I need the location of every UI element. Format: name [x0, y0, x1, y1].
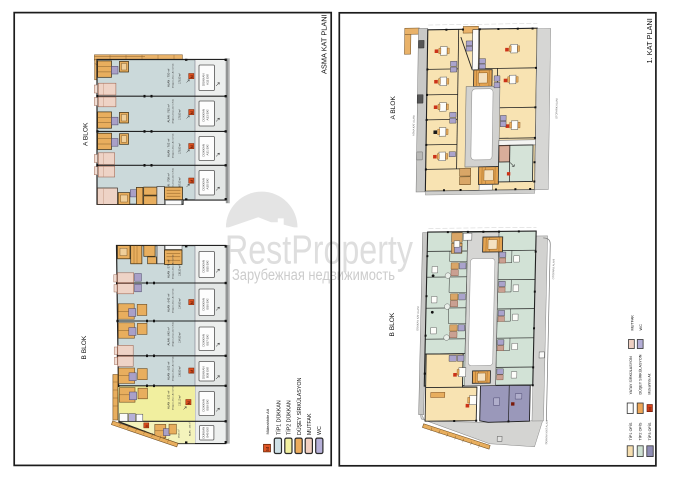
svg-text:OTOPARK ALANI: OTOPARK ALANI: [551, 259, 555, 280]
svg-text:A31 EKİ: A31 EKİ: [205, 144, 210, 155]
svg-text:M: M: [187, 401, 191, 404]
svg-text:ALAN : 632 m²: ALAN : 632 m²: [167, 391, 171, 409]
svg-text:173,80 m²: 173,80 m²: [179, 143, 182, 154]
svg-text:173,80 m²: 173,80 m²: [179, 109, 182, 120]
svg-text:A33 EKİ: A33 EKİ: [205, 109, 210, 120]
svg-text:Müteahhite Ait: Müteahhite Ait: [265, 408, 270, 434]
svg-text:TİP2 DÜKKAN: TİP2 DÜKKAN: [286, 400, 293, 435]
svg-text:M: M: [190, 75, 194, 78]
svg-text:A32 EKİ: A32 EKİ: [205, 74, 210, 85]
svg-text:M: M: [265, 447, 270, 451]
svg-text:TİP2 OFİS: TİP2 OFİS: [638, 422, 643, 440]
svg-text:ALAN : 762 m²: ALAN : 762 m²: [167, 104, 171, 122]
svg-text:B38 EKİ: B38 EKİ: [205, 367, 210, 378]
svg-text:28,15 m²: 28,15 m²: [178, 429, 181, 438]
svg-text:M: M: [190, 145, 194, 148]
svg-text:B BLOK: B BLOK: [389, 312, 396, 336]
svg-text:1. KAT PLANI: 1. KAT PLANI: [645, 18, 654, 63]
svg-text:B39 EKİ: B39 EKİ: [205, 399, 210, 410]
svg-text:(Mağaza+Depo+Asma Kat): (Mağaza+Depo+Asma Kat): [171, 133, 174, 158]
svg-text:OTOPARK ALANI: OTOPARK ALANI: [554, 98, 558, 119]
svg-text:WC: WC: [639, 324, 643, 331]
svg-text:ALAN : 762 m²: ALAN : 762 m²: [167, 139, 171, 157]
svg-text:B BLOK: B BLOK: [81, 335, 88, 359]
svg-text:DÜŞEY SİRKÜLASYON: DÜŞEY SİRKÜLASYON: [296, 378, 303, 435]
svg-text:138,30 m²: 138,30 m²: [179, 265, 182, 276]
svg-text:B36 EKİ: B36 EKİ: [205, 298, 210, 309]
svg-text:TİP1 DÜKKAN: TİP1 DÜKKAN: [275, 400, 282, 435]
svg-text:MUTFAK: MUTFAK: [630, 315, 634, 331]
svg-text:YATAY SİRKÜLASYON: YATAY SİRKÜLASYON: [628, 356, 633, 395]
svg-text:A BLOK: A BLOK: [390, 95, 397, 119]
svg-text:134,80 m²: 134,80 m²: [179, 332, 182, 343]
svg-text:M: M: [190, 301, 194, 304]
svg-text:TİP1 OFİS: TİP1 OFİS: [628, 422, 633, 440]
svg-text:RestProperty: RestProperty: [225, 227, 413, 273]
svg-text:DÜŞEY SİRKÜLASYON: DÜŞEY SİRKÜLASYON: [638, 354, 643, 394]
svg-text:M: M: [190, 111, 194, 114]
svg-text:M: M: [145, 424, 149, 427]
svg-text:A BLOK: A BLOK: [83, 122, 90, 146]
svg-text:B40 EKİ: B40 EKİ: [204, 427, 209, 437]
svg-text:(Mağaza+Depo+Asma Kat): (Mağaza+Depo+Asma Kat): [171, 356, 174, 381]
svg-text:ALAN : 136 m²: ALAN : 136 m²: [189, 421, 192, 436]
svg-text:DÜKKAN KAT ALANI: DÜKKAN KAT ALANI: [415, 306, 420, 331]
svg-text:(Mağaza+Depo+Asma Kat): (Mağaza+Depo+Asma Kat): [171, 322, 174, 347]
svg-text:ALAN : 662 m²: ALAN : 662 m²: [167, 362, 171, 380]
svg-text:MUTFAK: MUTFAK: [307, 413, 313, 435]
svg-text:A30 EKİ: A30 EKİ: [205, 178, 210, 189]
svg-text:TİP3 OFİS: TİP3 OFİS: [647, 422, 652, 440]
svg-text:M: M: [648, 407, 653, 411]
svg-text:(Mağaza+Depo+Asma Kat): (Mağaza+Depo+Asma Kat): [171, 254, 174, 279]
svg-text:ALAN : 642 m²: ALAN : 642 m²: [167, 327, 171, 345]
svg-text:B37 EKİ: B37 EKİ: [205, 334, 210, 345]
svg-text:DÜKKAN KAT ALANI: DÜKKAN KAT ALANI: [544, 420, 549, 445]
svg-text:134,80 m²: 134,80 m²: [179, 298, 182, 309]
svg-text:ALAN : 578 m²: ALAN : 578 m²: [167, 260, 171, 278]
svg-text:(Mağaza+Depo+Asma Kat): (Mağaza+Depo+Asma Kat): [171, 63, 174, 88]
svg-text:167,50 m²: 167,50 m²: [179, 177, 182, 188]
svg-text:ALAN : 642 m²: ALAN : 642 m²: [167, 294, 171, 312]
svg-text:M: M: [190, 180, 194, 183]
svg-text:(Mağaza+Depo+Asma Kat): (Mağaza+Depo+Asma Kat): [171, 385, 174, 410]
svg-text:(Mağaza+Depo+Asma Kat): (Mağaza+Depo+Asma Kat): [171, 288, 174, 313]
svg-text:Müteahhite Ait: Müteahhite Ait: [648, 374, 652, 395]
svg-text:ASMA KAT PLANI: ASMA KAT PLANI: [320, 14, 329, 74]
svg-text:B35 EKİ: B35 EKİ: [205, 260, 210, 271]
svg-text:132,10 m²: 132,10 m²: [179, 395, 182, 406]
svg-text:M: M: [190, 370, 194, 373]
svg-text:(Mağaza+Depo+Asma Kat): (Mağaza+Depo+Asma Kat): [171, 99, 174, 124]
svg-text:ASMA KAT ALANI: ASMA KAT ALANI: [411, 115, 415, 136]
svg-text:WC: WC: [317, 426, 323, 435]
svg-text:ALAN : 750 m²: ALAN : 750 m²: [167, 69, 171, 87]
svg-text:Зарубежная недвижимость: Зарубежная недвижимость: [232, 267, 395, 284]
svg-text:173,50 m²: 173,50 m²: [179, 73, 182, 84]
svg-text:136,80 m²: 136,80 m²: [179, 366, 182, 377]
